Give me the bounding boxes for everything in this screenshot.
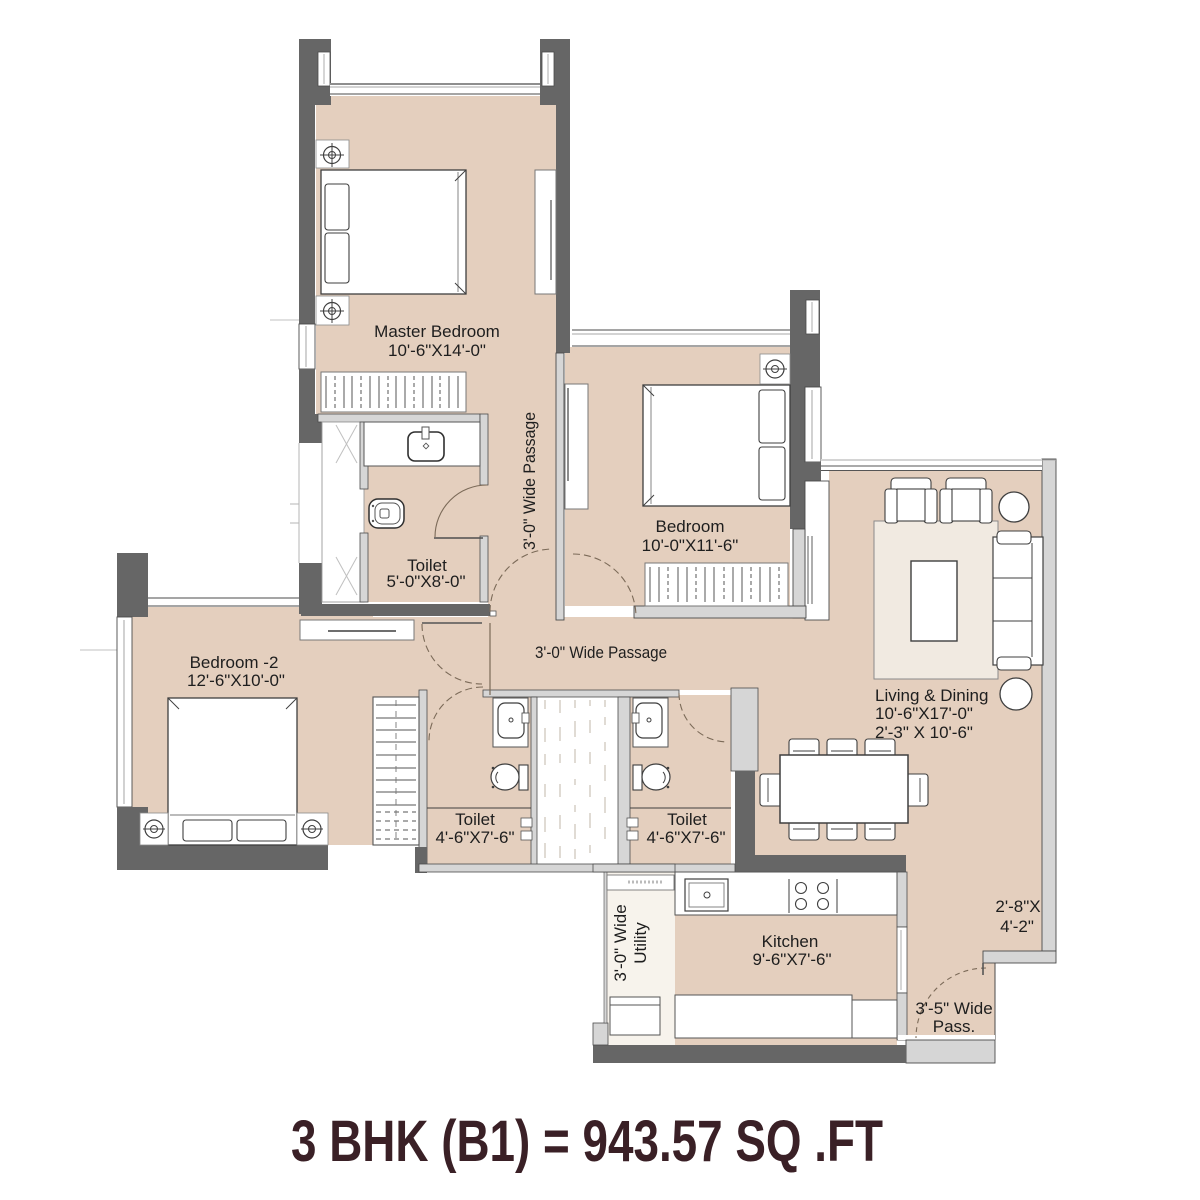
svg-text:2'-3" X 10'-6": 2'-3" X 10'-6" xyxy=(875,723,973,742)
svg-text:Living & Dining: Living & Dining xyxy=(875,686,988,705)
svg-text:4'-6"X7'-6": 4'-6"X7'-6" xyxy=(435,828,514,847)
svg-text:12'-6"X10'-0": 12'-6"X10'-0" xyxy=(187,671,285,690)
svg-text:2'-8"X: 2'-8"X xyxy=(995,897,1040,916)
svg-text:3'-0" Wide Passage: 3'-0" Wide Passage xyxy=(535,643,667,662)
svg-text:Master Bedroom: Master Bedroom xyxy=(374,322,500,341)
svg-text:9'-6"X7'-6": 9'-6"X7'-6" xyxy=(752,950,831,969)
svg-text:Bedroom -2: Bedroom -2 xyxy=(190,653,279,672)
svg-text:10'-0"X11'-6": 10'-0"X11'-6" xyxy=(642,536,739,555)
svg-text:3'-5" Wide: 3'-5" Wide xyxy=(915,999,992,1018)
svg-text:5'-0"X8'-0": 5'-0"X8'-0" xyxy=(386,572,465,591)
svg-text:10'-6"X14'-0": 10'-6"X14'-0" xyxy=(388,341,486,360)
svg-text:Toilet: Toilet xyxy=(455,810,495,829)
svg-text:3 BHK (B1) = 943.57 SQ .FT: 3 BHK (B1) = 943.57 SQ .FT xyxy=(291,1109,883,1174)
svg-text:3'-0" Wide: 3'-0" Wide xyxy=(611,904,630,981)
svg-text:Bedroom: Bedroom xyxy=(656,517,725,536)
svg-text:Pass.: Pass. xyxy=(933,1017,976,1036)
svg-text:4'-2": 4'-2" xyxy=(1000,917,1034,936)
svg-text:Utility: Utility xyxy=(631,922,650,964)
svg-text:Kitchen: Kitchen xyxy=(762,932,819,951)
svg-text:4'-6"X7'-6": 4'-6"X7'-6" xyxy=(646,828,725,847)
svg-text:10'-6"X17'-0": 10'-6"X17'-0" xyxy=(875,704,973,723)
svg-text:3'-0" Wide Passage: 3'-0" Wide Passage xyxy=(520,412,539,550)
svg-text:Toilet: Toilet xyxy=(667,810,707,829)
